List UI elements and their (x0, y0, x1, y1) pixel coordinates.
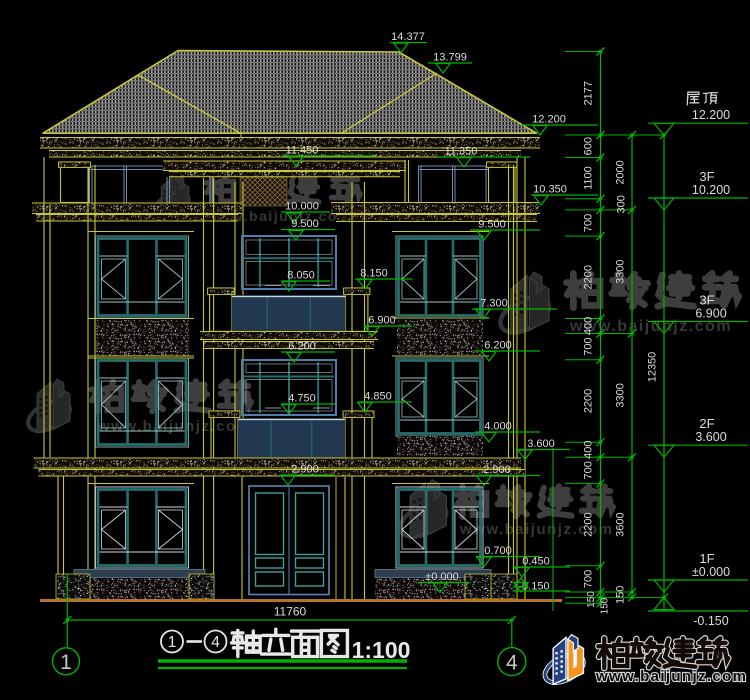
svg-text:2200: 2200 (583, 512, 595, 536)
svg-text:2F: 2F (699, 416, 714, 431)
svg-text:4: 4 (211, 634, 220, 651)
svg-text:9.500: 9.500 (291, 218, 319, 230)
svg-text:14.377: 14.377 (391, 31, 425, 43)
svg-text:8.050: 8.050 (287, 270, 315, 282)
svg-text:150: 150 (586, 591, 597, 608)
svg-text:11.350: 11.350 (445, 146, 478, 158)
svg-text:4: 4 (506, 652, 518, 675)
svg-text:600: 600 (583, 137, 595, 155)
svg-text:13.799: 13.799 (433, 52, 467, 64)
svg-text:9.500: 9.500 (478, 219, 506, 231)
svg-text:2.900: 2.900 (291, 464, 319, 476)
svg-text:3300: 3300 (615, 259, 627, 283)
svg-text:12350: 12350 (647, 352, 659, 383)
svg-text:4.850: 4.850 (364, 391, 392, 403)
svg-text:2200: 2200 (583, 389, 595, 413)
svg-text:12.200: 12.200 (532, 114, 566, 126)
svg-text:6.200: 6.200 (288, 341, 316, 353)
svg-text:8.150: 8.150 (360, 268, 388, 280)
svg-text:11.450: 11.450 (286, 145, 319, 157)
svg-text:10.350: 10.350 (533, 184, 567, 196)
svg-text:2200: 2200 (583, 265, 595, 289)
svg-text:3.600: 3.600 (527, 438, 555, 450)
svg-text:3300: 3300 (615, 383, 627, 407)
svg-text:700: 700 (583, 214, 595, 232)
svg-text:700: 700 (583, 570, 595, 588)
svg-text:±0.000: ±0.000 (425, 571, 459, 583)
svg-text:7.300: 7.300 (480, 298, 508, 310)
svg-text:12.200: 12.200 (692, 108, 730, 122)
svg-text:6.200: 6.200 (484, 340, 512, 352)
svg-text:700: 700 (583, 337, 595, 355)
svg-text:10.000: 10.000 (285, 201, 319, 213)
svg-text:11760: 11760 (274, 605, 307, 619)
svg-text:www.baijunjz.com: www.baijunjz.com (97, 418, 251, 435)
svg-text:1: 1 (168, 634, 177, 651)
svg-text:6.900: 6.900 (695, 307, 726, 321)
svg-text:3.600: 3.600 (695, 430, 726, 444)
svg-text:3F: 3F (699, 293, 714, 308)
svg-text:150: 150 (600, 597, 611, 614)
svg-text:400: 400 (583, 317, 595, 335)
svg-text:2177: 2177 (583, 81, 595, 105)
svg-text:400: 400 (583, 441, 595, 459)
svg-text:2.900: 2.900 (483, 464, 511, 476)
svg-text:www.baijunjz.com: www.baijunjz.com (595, 668, 746, 685)
svg-text:6.900: 6.900 (368, 315, 396, 327)
svg-text:1: 1 (60, 651, 72, 674)
svg-text:1F: 1F (699, 551, 714, 566)
svg-text:150: 150 (615, 586, 627, 604)
svg-text:4.750: 4.750 (288, 393, 316, 405)
svg-text:700: 700 (583, 461, 595, 479)
svg-text:1100: 1100 (583, 166, 595, 190)
svg-text:0.450: 0.450 (522, 556, 550, 568)
svg-text:300: 300 (616, 195, 628, 213)
svg-text:-0.150: -0.150 (693, 614, 728, 628)
svg-text:4.000: 4.000 (484, 421, 512, 433)
svg-text:0.700: 0.700 (484, 545, 512, 557)
svg-text:3F: 3F (699, 169, 714, 184)
svg-text:1:100: 1:100 (352, 637, 411, 663)
svg-text:±0.000: ±0.000 (692, 565, 730, 579)
svg-text:3600: 3600 (615, 512, 627, 536)
svg-text:10.200: 10.200 (692, 183, 730, 197)
svg-text:2000: 2000 (615, 160, 627, 184)
